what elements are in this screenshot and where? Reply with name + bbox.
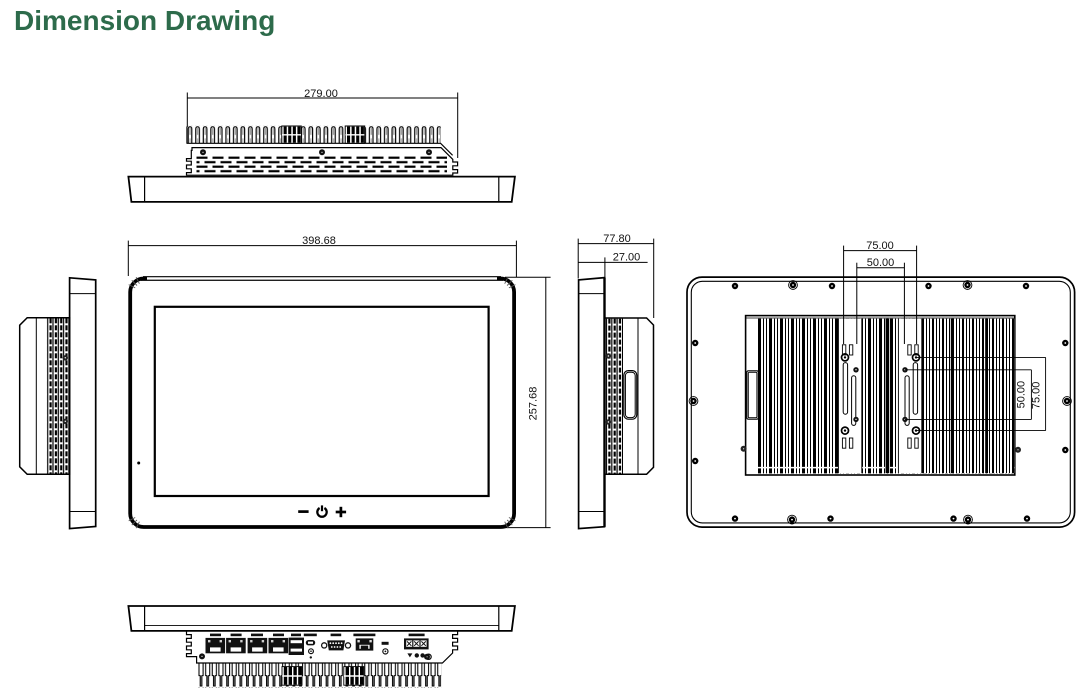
svg-text:50.00: 50.00	[867, 257, 895, 269]
svg-text:257.68: 257.68	[528, 387, 540, 421]
svg-text:50.00: 50.00	[1015, 381, 1027, 409]
svg-text:398.68: 398.68	[302, 235, 336, 247]
svg-text:27.00: 27.00	[613, 251, 641, 263]
svg-text:279.00: 279.00	[304, 88, 338, 100]
svg-text:75.00: 75.00	[866, 240, 894, 252]
svg-text:75.00: 75.00	[1030, 382, 1042, 410]
svg-text:77.80: 77.80	[603, 233, 631, 245]
